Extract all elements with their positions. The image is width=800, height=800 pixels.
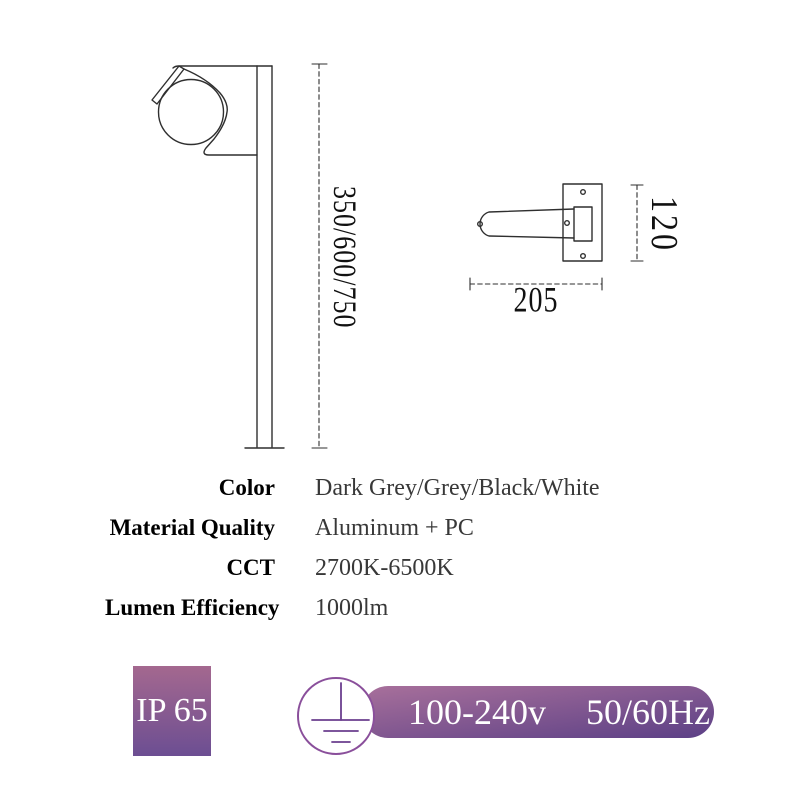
width-dimension-label: 205 xyxy=(496,280,576,322)
spec-label-lumen: Lumen Efficiency xyxy=(105,588,275,628)
depth-dimension-label: 120 xyxy=(643,196,687,253)
plate-hole-bottom xyxy=(581,254,586,259)
technical-drawings xyxy=(0,0,800,800)
spec-label-cct: CCT xyxy=(105,548,275,588)
lamp-arm xyxy=(480,209,574,238)
pole-cross-section xyxy=(574,207,592,241)
ip-rating-badge: IP 65 xyxy=(133,666,211,756)
lamp-globe xyxy=(159,80,224,145)
voltage-label: 100-240v xyxy=(408,691,546,733)
protective-earth-icon xyxy=(299,679,373,753)
bollard-side-view-drawing xyxy=(152,66,284,448)
spec-value-cct: 2700K-6500K xyxy=(315,548,600,588)
spec-value-color: Dark Grey/Grey/Black/White xyxy=(315,468,600,508)
power-rating-pill: 100-240v 50/60Hz xyxy=(362,686,714,738)
arm-plate-hole xyxy=(565,221,570,226)
grounding-badge xyxy=(297,677,375,755)
spec-label-material: Material Quality xyxy=(105,508,275,548)
spec-value-lumen: 1000lm xyxy=(315,588,600,628)
height-dimension-label: 350/600/750 xyxy=(325,186,363,328)
spec-table: Color Dark Grey/Grey/Black/White Materia… xyxy=(105,468,600,628)
frequency-label: 50/60Hz xyxy=(586,691,710,733)
depth-dimension-line xyxy=(631,185,643,261)
bracket-top-view-drawing xyxy=(478,184,602,261)
spec-value-material: Aluminum + PC xyxy=(315,508,600,548)
plate-hole-top xyxy=(581,190,586,195)
spec-label-color: Color xyxy=(105,468,275,508)
lamp-head-outline xyxy=(184,69,257,155)
lamp-visor xyxy=(152,66,184,104)
product-spec-sheet: 350/600/750 120 205 Color Dark Grey/Grey… xyxy=(0,0,800,800)
